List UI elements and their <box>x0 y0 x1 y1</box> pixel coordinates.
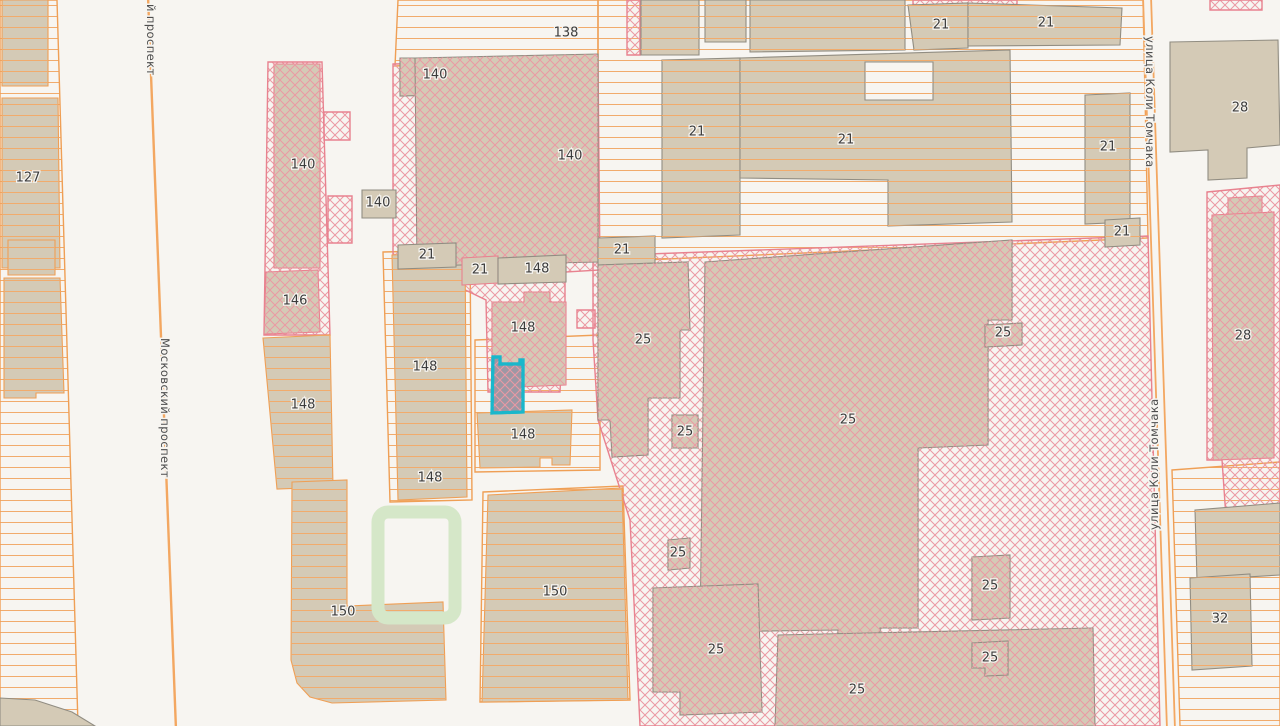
building-label: 25 <box>840 413 857 428</box>
building-label: 148 <box>291 398 316 413</box>
parcel-boundary[interactable] <box>627 0 640 55</box>
building-label: 28 <box>1232 101 1249 116</box>
street-label: й проспект <box>144 4 158 76</box>
building-21-courtyard-pattern <box>865 62 933 100</box>
building-label: 148 <box>525 262 550 277</box>
building-label: 21 <box>1100 140 1117 155</box>
building-label: 25 <box>849 683 866 698</box>
building-label: 25 <box>677 425 694 440</box>
parcel-boundary[interactable] <box>328 196 352 243</box>
building-label: 21 <box>1114 225 1131 240</box>
building-label: 21 <box>472 263 489 278</box>
building-127-c-pattern <box>4 278 64 398</box>
building-label: 138 <box>554 26 579 41</box>
building-label: 146 <box>283 294 308 309</box>
parcel-boundary[interactable] <box>1210 0 1262 10</box>
building-label: 140 <box>291 158 316 173</box>
building-top-a-pattern <box>641 0 699 55</box>
building-top-b-pattern <box>705 0 746 42</box>
building-label: 28 <box>1235 329 1252 344</box>
building-127-b-pattern <box>8 240 55 275</box>
building-label: 25 <box>982 579 999 594</box>
building-label: 25 <box>635 333 652 348</box>
street-label: улица Коли Томчака <box>1147 398 1161 530</box>
building-label: 150 <box>543 585 568 600</box>
building-label: 21 <box>614 243 631 258</box>
building-label: 25 <box>670 546 687 561</box>
building-label: 21 <box>419 248 436 263</box>
building-label: 21 <box>689 125 706 140</box>
map-svg[interactable]: й проспектМосковский проспектулица Коли … <box>0 0 1280 726</box>
map-canvas[interactable]: й проспектМосковский проспектулица Коли … <box>0 0 1280 726</box>
building-label: 25 <box>982 651 999 666</box>
building-top-c-pattern <box>750 0 905 52</box>
building-right-edge-pattern <box>1195 503 1280 580</box>
street-label: Московский проспект <box>158 338 172 478</box>
building-label: 140 <box>366 196 391 211</box>
building-label: 148 <box>418 471 443 486</box>
building-label: 150 <box>331 605 356 620</box>
building-148-tall-pattern <box>392 252 467 500</box>
building-label: 21 <box>933 18 950 33</box>
building-25-wide-pattern <box>775 628 1095 726</box>
building-127-a-pattern <box>2 0 48 86</box>
street-label: улица Коли Томчака <box>1143 36 1157 168</box>
parcel-boundary[interactable] <box>577 310 595 328</box>
building-label: 32 <box>1212 612 1229 627</box>
building-label: 140 <box>423 68 448 83</box>
building-label: 21 <box>1038 16 1055 31</box>
building-label: 25 <box>708 643 725 658</box>
building-label: 127 <box>16 171 41 186</box>
building-label: 148 <box>413 360 438 375</box>
building-label: 148 <box>511 321 536 336</box>
parcel-boundary[interactable] <box>324 112 350 140</box>
building-label: 140 <box>558 149 583 164</box>
building-21-east-pattern <box>1085 93 1130 224</box>
building-21-main-left-pattern <box>662 58 740 238</box>
building-label: 25 <box>995 326 1012 341</box>
building-label: 148 <box>511 428 536 443</box>
building-label: 21 <box>838 133 855 148</box>
